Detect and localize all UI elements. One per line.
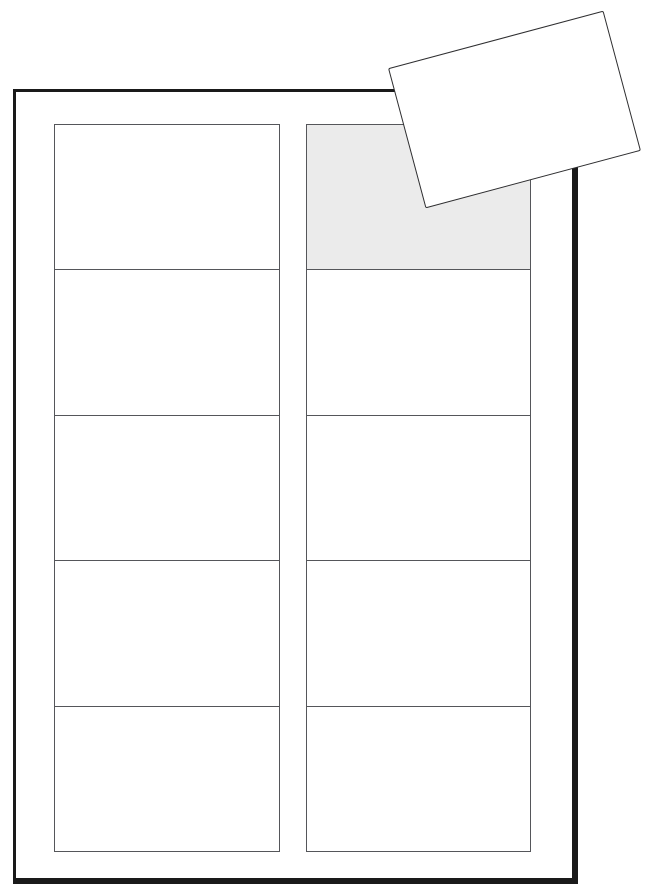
label-column-right	[306, 124, 531, 852]
label-sheet	[13, 89, 578, 884]
label-cell	[307, 560, 530, 705]
label-cell	[55, 415, 279, 560]
label-cell	[55, 560, 279, 705]
label-cell	[307, 269, 530, 414]
label-cell	[307, 706, 530, 851]
label-cell	[55, 269, 279, 414]
page-background	[0, 0, 651, 895]
label-cell	[55, 125, 279, 269]
peeled-label	[388, 11, 641, 209]
label-cell	[307, 415, 530, 560]
label-cell	[55, 706, 279, 851]
label-column-left	[54, 124, 280, 852]
